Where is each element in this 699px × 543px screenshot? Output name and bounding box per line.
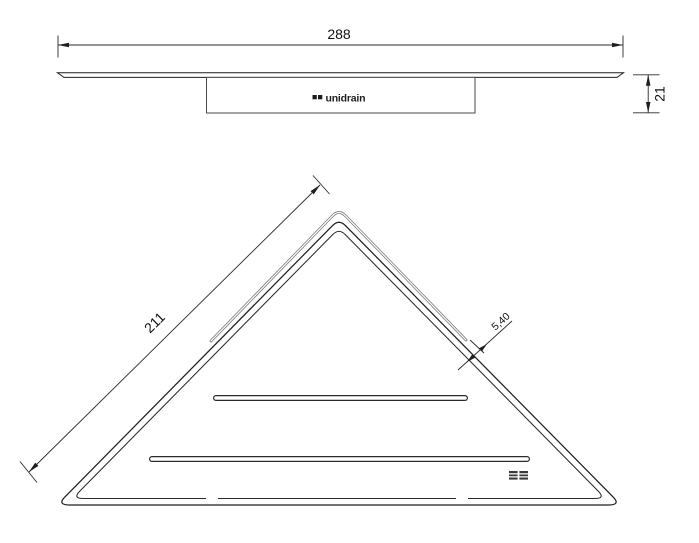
grate-plate-profile: [58, 73, 624, 78]
unidrain-logo-text: unidrain: [326, 93, 366, 105]
dim-288-label: 288: [327, 26, 351, 42]
drain-technical-drawing: 288 unidrain 21: [0, 0, 699, 543]
unidrain-logo-square-icon: [318, 95, 322, 99]
inner-line-break: [456, 496, 468, 501]
technical-drawing-page: 288 unidrain 21: [0, 0, 699, 543]
inner-line-break: [206, 496, 218, 501]
dim-21-label: 21: [652, 86, 668, 102]
unidrain-logo-square-icon: [313, 95, 317, 99]
